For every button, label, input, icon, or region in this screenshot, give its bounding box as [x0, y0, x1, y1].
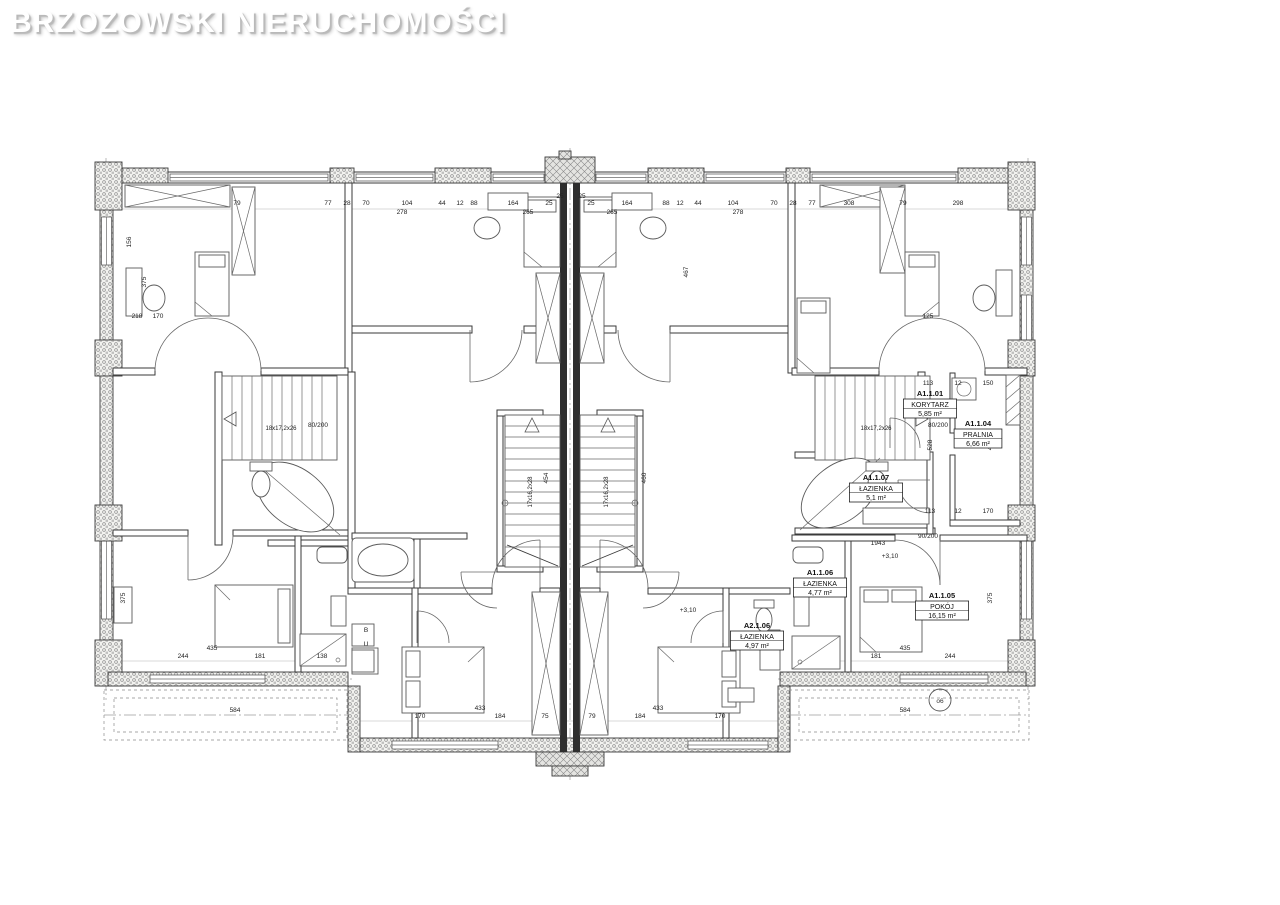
dimension-text: 28 [343, 200, 351, 207]
dimension-text: 70 [770, 200, 778, 207]
dimension-text: 138 [317, 653, 328, 660]
dimension-text: 12 [456, 200, 464, 207]
stair-label: 17x16,2x28 [604, 476, 610, 508]
dimension-text: 170 [983, 508, 994, 515]
dimension-text: 181 [871, 653, 882, 660]
dimension-text: 170 [415, 713, 426, 720]
stair-label: 18x17,2x26 [860, 426, 892, 432]
room-area: 6,66 m² [966, 441, 990, 448]
dimension-text: B [364, 627, 368, 634]
dimension-text: 308 [844, 200, 855, 207]
dimension-text: 25 [578, 193, 586, 200]
dimension-text: 265 [607, 209, 618, 216]
room-id: A1.1.04 [965, 419, 992, 428]
bed [860, 587, 922, 652]
room-label: A1.1.04PRALNIA6,66 m² [954, 419, 1002, 448]
room-name: ŁAZIENKA [740, 634, 774, 641]
dimension-text: 77 [808, 200, 816, 207]
dimension-text: +3,10 [882, 553, 899, 560]
bed [797, 298, 830, 373]
dimension-text: 170 [153, 313, 164, 320]
dimension-text: +3,10 [680, 607, 697, 614]
room-area: 4,77 m² [808, 590, 832, 597]
dimension-text: 44 [438, 200, 446, 207]
dimension-text: 12 [676, 200, 684, 207]
dimension-text: 104 [402, 200, 413, 207]
room-label: A1.1.06ŁAZIENKA4,77 m² [793, 568, 846, 597]
bed [658, 647, 740, 713]
stair-label: 17x16,2x28 [528, 476, 534, 508]
dimension-text: 170 [715, 713, 726, 720]
grid-marker: o6 [929, 689, 951, 711]
dimension-text: 164 [622, 200, 633, 207]
dimension-text: 79 [899, 200, 907, 207]
toilet [250, 462, 272, 497]
dimension-text: 454 [543, 472, 550, 483]
stair-label: 18x17,2x26 [265, 426, 297, 432]
room-name: KORYTARZ [911, 402, 949, 409]
room-label: A2.1.06ŁAZIENKA4,97 m² [730, 621, 783, 650]
watermark: BRZOZOWSKI NIERUCHOMOŚCI [10, 6, 506, 40]
dimension-text: 584 [230, 707, 241, 714]
bed [215, 585, 293, 647]
dimension-text: 12 [954, 508, 962, 515]
grid-marker-label: o6 [936, 698, 944, 705]
dimension-text: 433 [475, 705, 486, 712]
room-id: A1.1.06 [807, 568, 833, 577]
dimension-text: 435 [900, 645, 911, 652]
room-id: A2.1.06 [744, 621, 770, 630]
dimension-text: 79 [588, 713, 596, 720]
dimension-text: 156 [126, 236, 133, 247]
room-area: 5,1 m² [866, 495, 887, 502]
dimension-text: 298 [953, 200, 964, 207]
dimension-text: 164 [508, 200, 519, 207]
dimension-text: 375 [141, 276, 148, 287]
dimension-text: 80/200 [308, 422, 328, 429]
dimension-text: 375 [987, 592, 994, 603]
bed [195, 252, 229, 316]
room-area: 5,85 m² [918, 411, 942, 418]
dimension-text: 265 [523, 209, 534, 216]
dimension-text: 25 [545, 200, 553, 207]
dimension-text: 584 [900, 707, 911, 714]
dimension-text: 460 [641, 472, 648, 483]
room-name: POKÓJ [930, 602, 954, 611]
dimension-text: 150 [983, 380, 994, 387]
bed [580, 197, 616, 267]
room-id: A1.1.01 [917, 389, 943, 398]
floor-plan-drawing: o6 7977287010444128816425251648812441047… [0, 0, 1280, 905]
dimension-text: 278 [733, 209, 744, 216]
room-name: PRALNIA [963, 432, 993, 439]
dimension-text: 80/200 [928, 422, 948, 429]
dimension-text: 244 [945, 653, 956, 660]
room-id: A1.1.05 [929, 591, 955, 600]
dimension-text: 25 [587, 200, 595, 207]
dimension-text: 113 [925, 508, 936, 515]
dimension-text: 70 [362, 200, 370, 207]
dimension-text: 435 [207, 645, 218, 652]
dimension-text: 75 [541, 713, 549, 720]
room-id: A1.1.07 [863, 473, 889, 482]
dimension-text: 181 [255, 653, 266, 660]
dimension-text: 12 [954, 380, 962, 387]
dimension-text: 79 [233, 200, 241, 207]
bed [905, 252, 939, 316]
dimension-text: 278 [397, 209, 408, 216]
room-area: 16,15 m² [928, 613, 956, 620]
bed [524, 197, 560, 267]
dimension-text: 1943 [871, 540, 886, 547]
dimension-text: 88 [662, 200, 670, 207]
dimension-text: 90/200 [918, 533, 938, 540]
dimension-text: 528 [927, 439, 934, 450]
dimension-text: 375 [120, 592, 127, 603]
floor-plan-page: o6 7977287010444128816425251648812441047… [0, 0, 1280, 905]
dimension-text: U [364, 641, 369, 648]
dimension-text: 28 [789, 200, 797, 207]
dimension-text: 113 [923, 380, 934, 387]
dimension-text: 467 [683, 266, 690, 277]
dimension-text: 25 [556, 193, 564, 200]
dimension-text: 88 [470, 200, 478, 207]
dimension-text: 433 [653, 705, 664, 712]
room-label: A1.1.05POKÓJ16,15 m² [915, 591, 968, 620]
dimension-text: 44 [694, 200, 702, 207]
dimension-text: 184 [495, 713, 506, 720]
dimension-text: 184 [635, 713, 646, 720]
room-name: ŁAZIENKA [803, 581, 837, 588]
dimension-text: 104 [728, 200, 739, 207]
dimension-text: 244 [178, 653, 189, 660]
room-area: 4,97 m² [745, 643, 769, 650]
dimension-text: 218 [132, 313, 143, 320]
room-name: ŁAZIENKA [859, 486, 893, 493]
bed [402, 647, 484, 713]
dimension-text: 125 [923, 313, 934, 320]
dimension-text: 77 [324, 200, 332, 207]
